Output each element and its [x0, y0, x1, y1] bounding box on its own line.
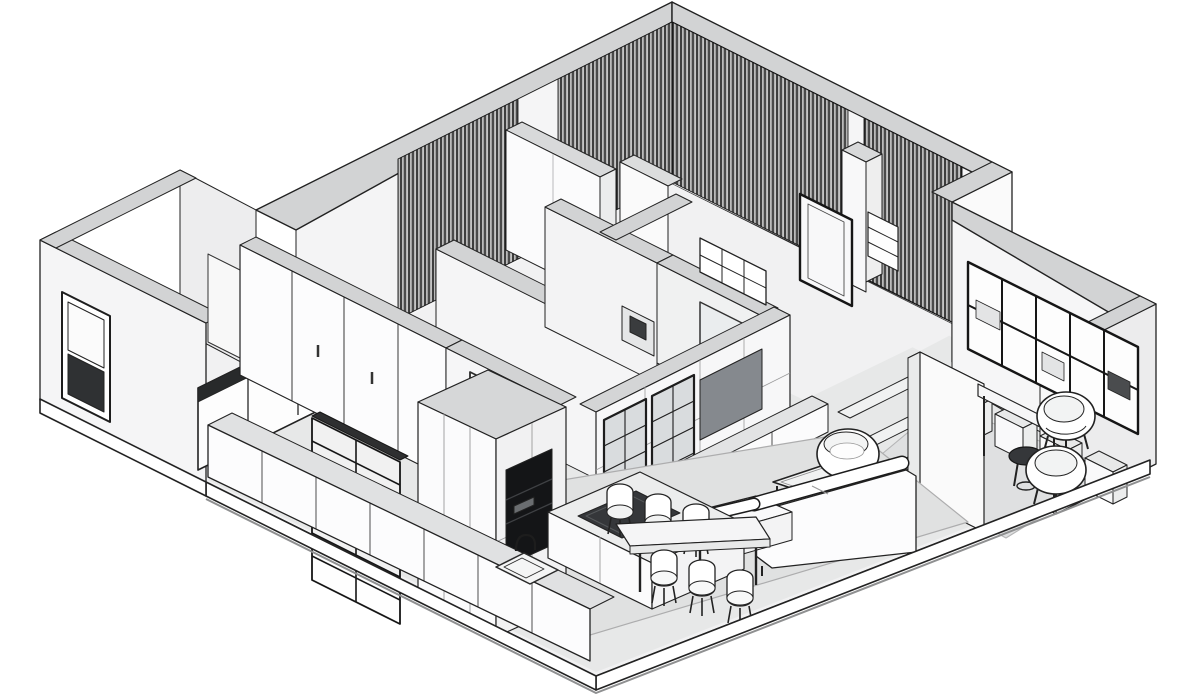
step-door-outline [208, 254, 240, 358]
entry-window [62, 292, 110, 422]
floor-plan-rendering [0, 0, 1200, 696]
floor-plan-stage [0, 0, 1200, 696]
armchair [1037, 392, 1095, 456]
entry-nw-wall-top [40, 170, 196, 248]
